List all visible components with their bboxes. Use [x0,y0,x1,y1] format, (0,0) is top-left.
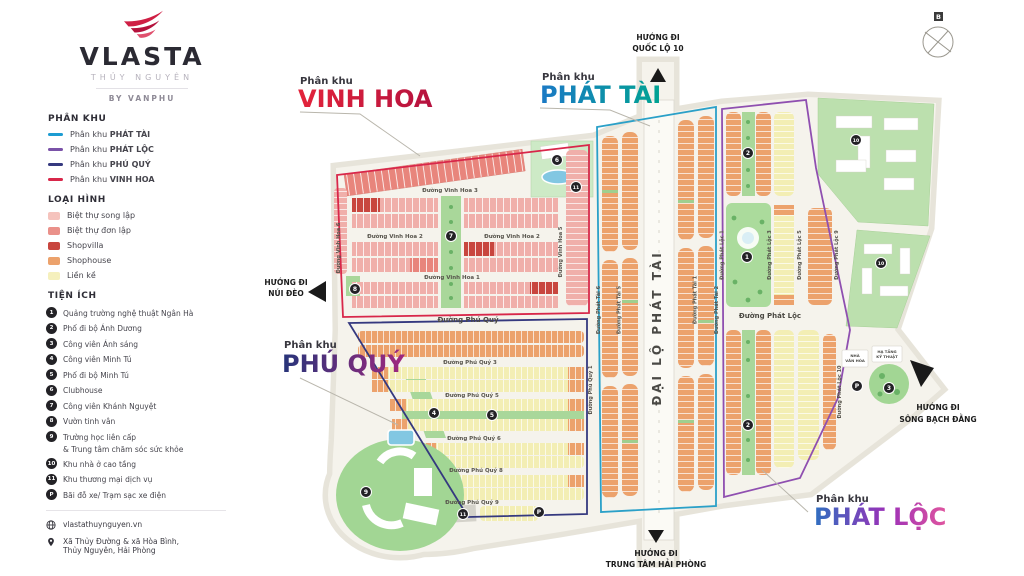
legend-item-biet-thu-song-lap: Biệt thự song lập [48,211,250,220]
svg-text:5: 5 [490,412,494,419]
contact-footer: vlastathuynguyen.vn Xã Thủy Đường & xã H… [46,510,226,555]
svg-text:VĂN HÓA: VĂN HÓA [845,358,865,363]
legend-item-shophouse: Shophouse [48,256,250,265]
amenity-badge: 7 [46,400,57,411]
svg-text:4: 4 [432,410,436,417]
zone-label-phat-loc: PHÁT LỘC [814,501,946,531]
brand-name: VLASTA [34,42,250,71]
street-vinh-hoa-2: Đường Vinh Hoa 2 [367,233,423,240]
amenity-badge: 8 [46,416,57,427]
street-phu-quy-5: Đường Phú Quý 5 [445,392,499,399]
amenity-badge: 3 [46,338,57,349]
legend-item-vinh-hoa: Phân khu VINH HOA [48,175,250,184]
location-pin-icon [46,537,56,547]
color-swatch [48,227,60,235]
svg-text:HƯỚNG ĐI: HƯỚNG ĐI [916,403,959,412]
marker-2: 2 [743,420,754,431]
marker-9: 9 [361,487,372,498]
amenity-item-1: 1Quảng trường nghệ thuật Ngân Hà [46,307,250,318]
marker-11: 11 [458,509,469,520]
marker-2: 2 [743,148,754,159]
legend-item-phat-tai: Phân khu PHÁT TÀI [48,130,250,139]
street-vinh-hoa-6: Đường Vinh Hoa 6 [335,222,342,273]
legend-item-phat-loc: Phân khu PHÁT LỘC [48,145,250,154]
amenity-badge: 6 [46,385,57,396]
street-vinh-hoa-3: Đường Vinh Hoa 3 [422,187,478,194]
marker-7: 7 [446,231,457,242]
color-swatch [48,242,60,250]
amenity-badge: 2 [46,323,57,334]
svg-text:HƯỚNG ĐI: HƯỚNG ĐI [264,278,307,287]
street-phu-quy-8: Đường Phú Quý 8 [449,467,503,474]
svg-text:P: P [855,383,860,390]
svg-text:6: 6 [555,157,559,164]
amenity-item-4: 4Công viên Minh Tú [46,354,250,365]
street-phu-quy-1: Đường Phú Quý 1 [587,365,594,414]
svg-text:10: 10 [878,261,884,267]
street-phat-tai-5: Đường Phát Tài 5 [616,285,623,334]
zone-line-swatch [48,148,63,151]
amenity-item-7: 7Công viên Khánh Nguyệt [46,400,250,411]
website-row: vlastathuynguyen.vn [46,520,226,530]
amenity-item-9-line2: & Trung tâm chăm sóc sức khỏe [63,445,250,454]
marker-10: 10 [876,258,887,269]
svg-text:TRUNG TÂM HẢI PHÒNG: TRUNG TÂM HẢI PHÒNG [606,559,707,569]
street-phat-tai-1: Đường Phát Tài 1 [692,275,699,324]
legend-heading-tien-ich: TIỆN ÍCH [48,291,250,301]
svg-text:10: 10 [853,138,859,144]
amenity-item-11: 11Khu thương mại dịch vụ [46,474,250,485]
compass-north-label: B [936,13,941,21]
marker-8: 8 [350,284,361,295]
svg-text:HƯỚNG ĐI: HƯỚNG ĐI [634,549,677,558]
amenity-item-2: 2Phố đi bộ Ánh Dương [46,323,250,334]
street-phu-quy-3: Đường Phú Quý 3 [443,359,497,366]
amenity-badge: 9 [46,431,57,442]
svg-text:P: P [537,509,542,516]
school-pool [388,430,414,445]
legend-item-biet-thu-don-lap: Biệt thự đơn lập [48,226,250,235]
amenity-badge: 10 [46,458,57,469]
brand-byline: BY VANPHU [96,88,188,103]
svg-text:KỸ THUẬT: KỸ THUẬT [876,354,898,359]
street-phat-tai-6: Đường Phát Tài 6 [595,285,602,334]
svg-text:7: 7 [449,233,453,240]
legend-item-phu-quy: Phân khu PHÚ QUÝ [48,160,250,169]
globe-icon [46,520,56,530]
street-phu-quy: Đường Phú Quý [437,315,499,324]
zone-label-vinh-hoa: VINH HOA [298,85,433,113]
legend-item-lien-ke: Liền kề [48,271,250,280]
svg-text:2: 2 [746,150,750,157]
amenity-badge: 5 [46,369,57,380]
marker-parking: P [852,381,863,392]
svg-text:QUỐC LỘ 10: QUỐC LỘ 10 [632,43,683,53]
legend-heading-phan-khu: PHÂN KHU [48,114,250,124]
svg-text:8: 8 [353,286,357,293]
marker-5: 5 [487,410,498,421]
zone-line-swatch [48,133,63,136]
svg-text:11: 11 [573,185,579,191]
marker-parking: P [534,507,545,518]
color-swatch [48,257,60,265]
legend-sidebar: VLASTA THỦY NGUYÊN BY VANPHU PHÂN KHU Ph… [34,10,250,562]
street-phat-loc-1: Đường Phát Lộc 1 [719,230,726,280]
anh-duong-walk-south [742,330,755,475]
street-phat-loc: Đường Phát Lộc [739,312,801,320]
svg-text:3: 3 [887,385,891,392]
legend-heading-loai-hinh: LOẠI HÌNH [48,195,250,205]
vlasta-logo-icon [116,10,168,40]
compass-rose: B [923,12,953,57]
zone-line-swatch [48,178,63,181]
direction-nui-deo: HƯỚNG ĐI NÚI ĐÈO [264,278,326,302]
amenity-item-6: 6Clubhouse [46,385,250,396]
street-phat-loc-5: Đường Phát Lộc 5 [796,230,803,280]
brand-subtitle: THỦY NGUYÊN [34,73,250,82]
street-vinh-hoa-2: Đường Vinh Hoa 2 [484,233,540,240]
color-swatch [48,272,60,280]
zone-label-phat-tai: PHÁT TÀI [540,80,661,109]
svg-text:1: 1 [745,254,749,261]
amenity-item-8: 8Vườn tinh vân [46,416,250,427]
street-vinh-hoa-1: Đường Vinh Hoa 1 [424,274,480,281]
street-phat-loc-3: Đường Phát Lộc 3 [766,230,773,280]
street-phu-quy-6: Đường Phú Quý 6 [447,435,501,442]
zone-label-phu-quy: PHÚ QUÝ [282,348,405,378]
svg-text:NÚI ĐÈO: NÚI ĐÈO [268,289,304,298]
street-phat-loc-10: Đường Phát Lộc 10 [836,365,843,419]
marker-6: 6 [552,155,563,166]
svg-text:HƯỚNG ĐI: HƯỚNG ĐI [636,33,679,42]
direction-hai-phong: HƯỚNG ĐI TRUNG TÂM HẢI PHÒNG [606,530,707,569]
amenity-item-9: 9Trường học liên cấp [46,431,250,442]
color-swatch [48,212,60,220]
amenity-badge: 4 [46,354,57,365]
website-link[interactable]: vlastathuynguyen.vn [63,520,142,529]
marker-1: 1 [742,252,753,263]
svg-text:2: 2 [746,422,750,429]
zone-line-swatch [48,163,63,166]
amenity-badge: P [46,489,57,500]
street-phat-loc-9: Đường Phát Lộc 9 [833,230,840,280]
brand-logo: VLASTA THỦY NGUYÊN BY VANPHU [34,10,250,103]
arrow-left-icon [308,281,326,302]
address-row: Xã Thủy Đường & xã Hòa Bình,Thủy Nguyên,… [46,537,226,555]
svg-text:SÔNG BẠCH ĐẰNG: SÔNG BẠCH ĐẰNG [899,414,976,424]
marker-3: 3 [884,383,895,394]
legend-item-shopvilla: Shopvilla [48,241,250,250]
street-phu-quy-9: Đường Phú Quý 9 [445,499,499,506]
marker-4: 4 [429,408,440,419]
amenity-badge: 1 [46,307,57,318]
amenity-item-10: 10Khu nhà ở cao tầng [46,458,250,469]
amenity-badge: 11 [46,474,57,485]
street-vinh-hoa-5: Đường Vinh Hoa 5 [557,226,564,277]
svg-text:11: 11 [460,512,466,518]
street-dai-lo-phat-tai: ĐẠI LỘ PHÁT TÀI [649,250,664,406]
svg-text:9: 9 [364,489,368,496]
marker-11: 11 [571,182,582,193]
amenity-item-5: 5Phố đi bộ Minh Tú [46,369,250,380]
street-phat-tai-2: Đường Phát Tài 2 [713,285,720,334]
amenity-item-parking: PBãi đỗ xe/ Trạm sạc xe điện [46,489,250,500]
marker-10: 10 [851,135,862,146]
amenity-item-3: 3Công viên Ánh sáng [46,338,250,349]
